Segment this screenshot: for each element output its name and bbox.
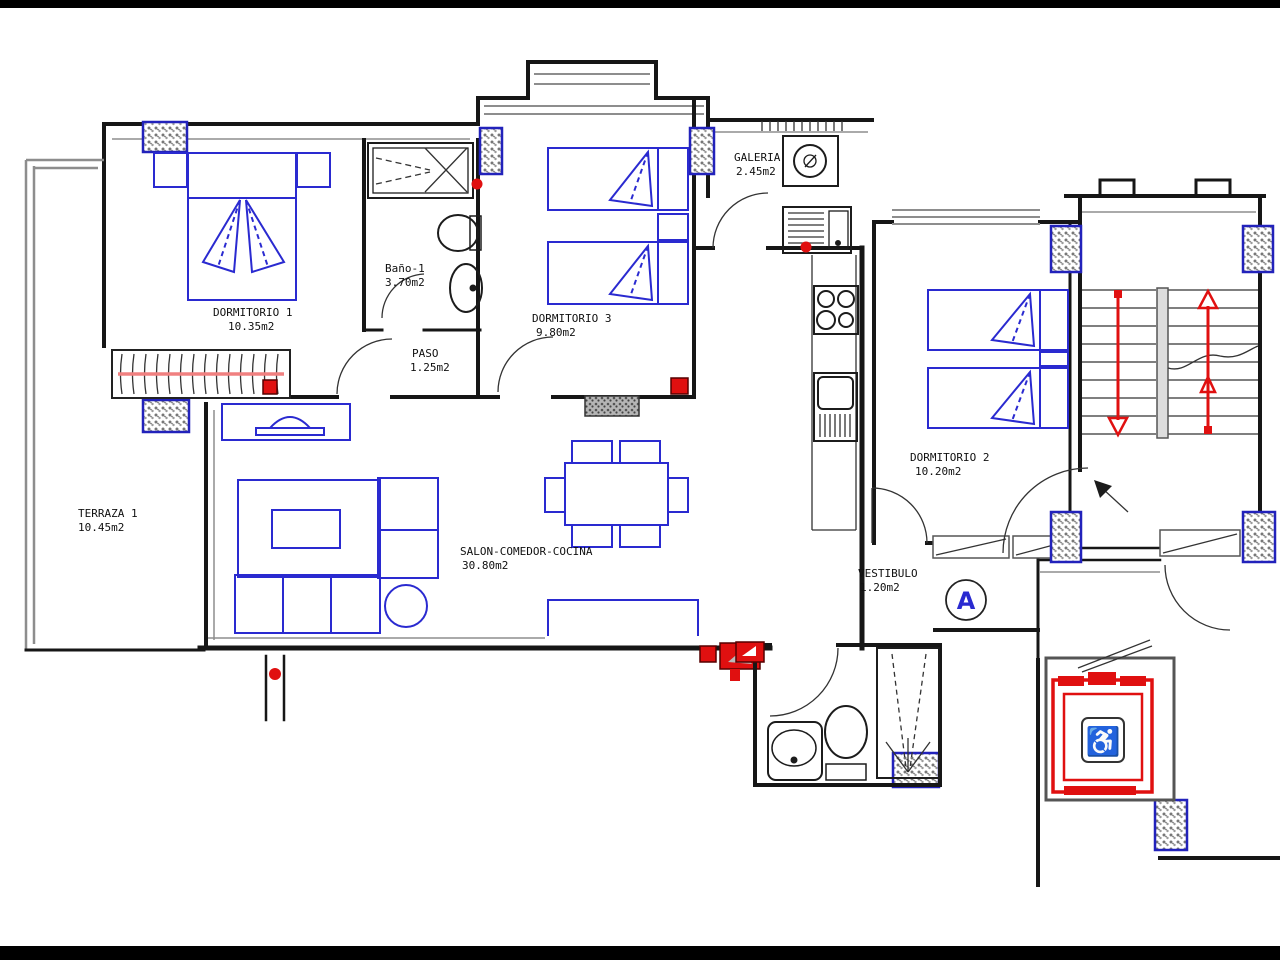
double-bed [154,153,330,300]
wheelchair-icon: ♿ [1086,725,1121,758]
twin-beds-dorm2 [928,290,1068,428]
room-label-paso: PASO [412,347,439,360]
red-dot [269,668,281,680]
bottom-bar [0,946,1280,960]
toilet-icon [825,706,867,758]
room-area-bano1: 3.70m2 [385,276,425,289]
room-area-vestibulo: 1.20m2 [860,581,900,594]
floor-plan-page: ♿ A DORMITORIO 1 10.35m2 Baño-1 3.70m2 D… [0,0,1280,960]
bathtub [368,143,473,198]
louver-window [112,350,290,398]
red-dot [472,179,483,190]
room-label-galeria: GALERIA [734,151,781,164]
room-label-vestibulo: VESTIBULO [858,567,918,580]
kitchen-strip [812,255,858,530]
tv-cabinet [222,404,350,440]
column [1243,226,1273,272]
room-label-dormitorio1: DORMITORIO 1 [213,306,292,319]
room-area-dormitorio3: 9.80m2 [536,326,576,339]
stairs [1082,288,1258,438]
column [1051,512,1081,562]
column [893,753,939,787]
galeria-appliances [783,136,851,253]
column [1051,226,1081,272]
room-area-dormitorio1: 10.35m2 [228,320,274,333]
room-label-terraza: TERRAZA 1 [78,507,138,520]
room-area-salon: 30.80m2 [462,559,508,572]
twin-beds-dorm3 [548,148,688,304]
red-valve [736,642,764,662]
elevator: ♿ [1046,640,1174,800]
dining-table-set [545,441,688,547]
room-label-bano1: Baño-1 [385,262,425,275]
red-dot [801,242,812,253]
room-label-salon: SALON-COMEDOR-COCINA [460,545,593,558]
room-label-dormitorio2: DORMITORIO 2 [910,451,989,464]
column [1155,800,1187,850]
red-marker [671,378,688,394]
section-marker: A [946,580,986,620]
entry-arrow [1094,480,1128,512]
column [690,128,714,174]
section-label: A [957,587,976,615]
column [143,122,187,152]
top-bar [0,0,1280,8]
room-area-dormitorio2: 10.20m2 [915,465,961,478]
sofa-group [235,478,438,633]
sideboard [548,600,698,636]
column [1243,512,1275,562]
window-sills [933,530,1240,558]
room-area-terraza: 10.45m2 [78,521,124,534]
window-sill-dorm3 [585,396,639,416]
floor-plan: ♿ A DORMITORIO 1 10.35m2 Baño-1 3.70m2 D… [0,0,1280,960]
column [480,128,502,174]
column [143,400,189,432]
room-area-paso: 1.25m2 [410,361,450,374]
room-area-galeria: 2.45m2 [736,165,776,178]
side-table [385,585,427,627]
red-marker [263,380,277,394]
room-label-dormitorio3: DORMITORIO 3 [532,312,611,325]
toilet-icon [438,215,478,251]
